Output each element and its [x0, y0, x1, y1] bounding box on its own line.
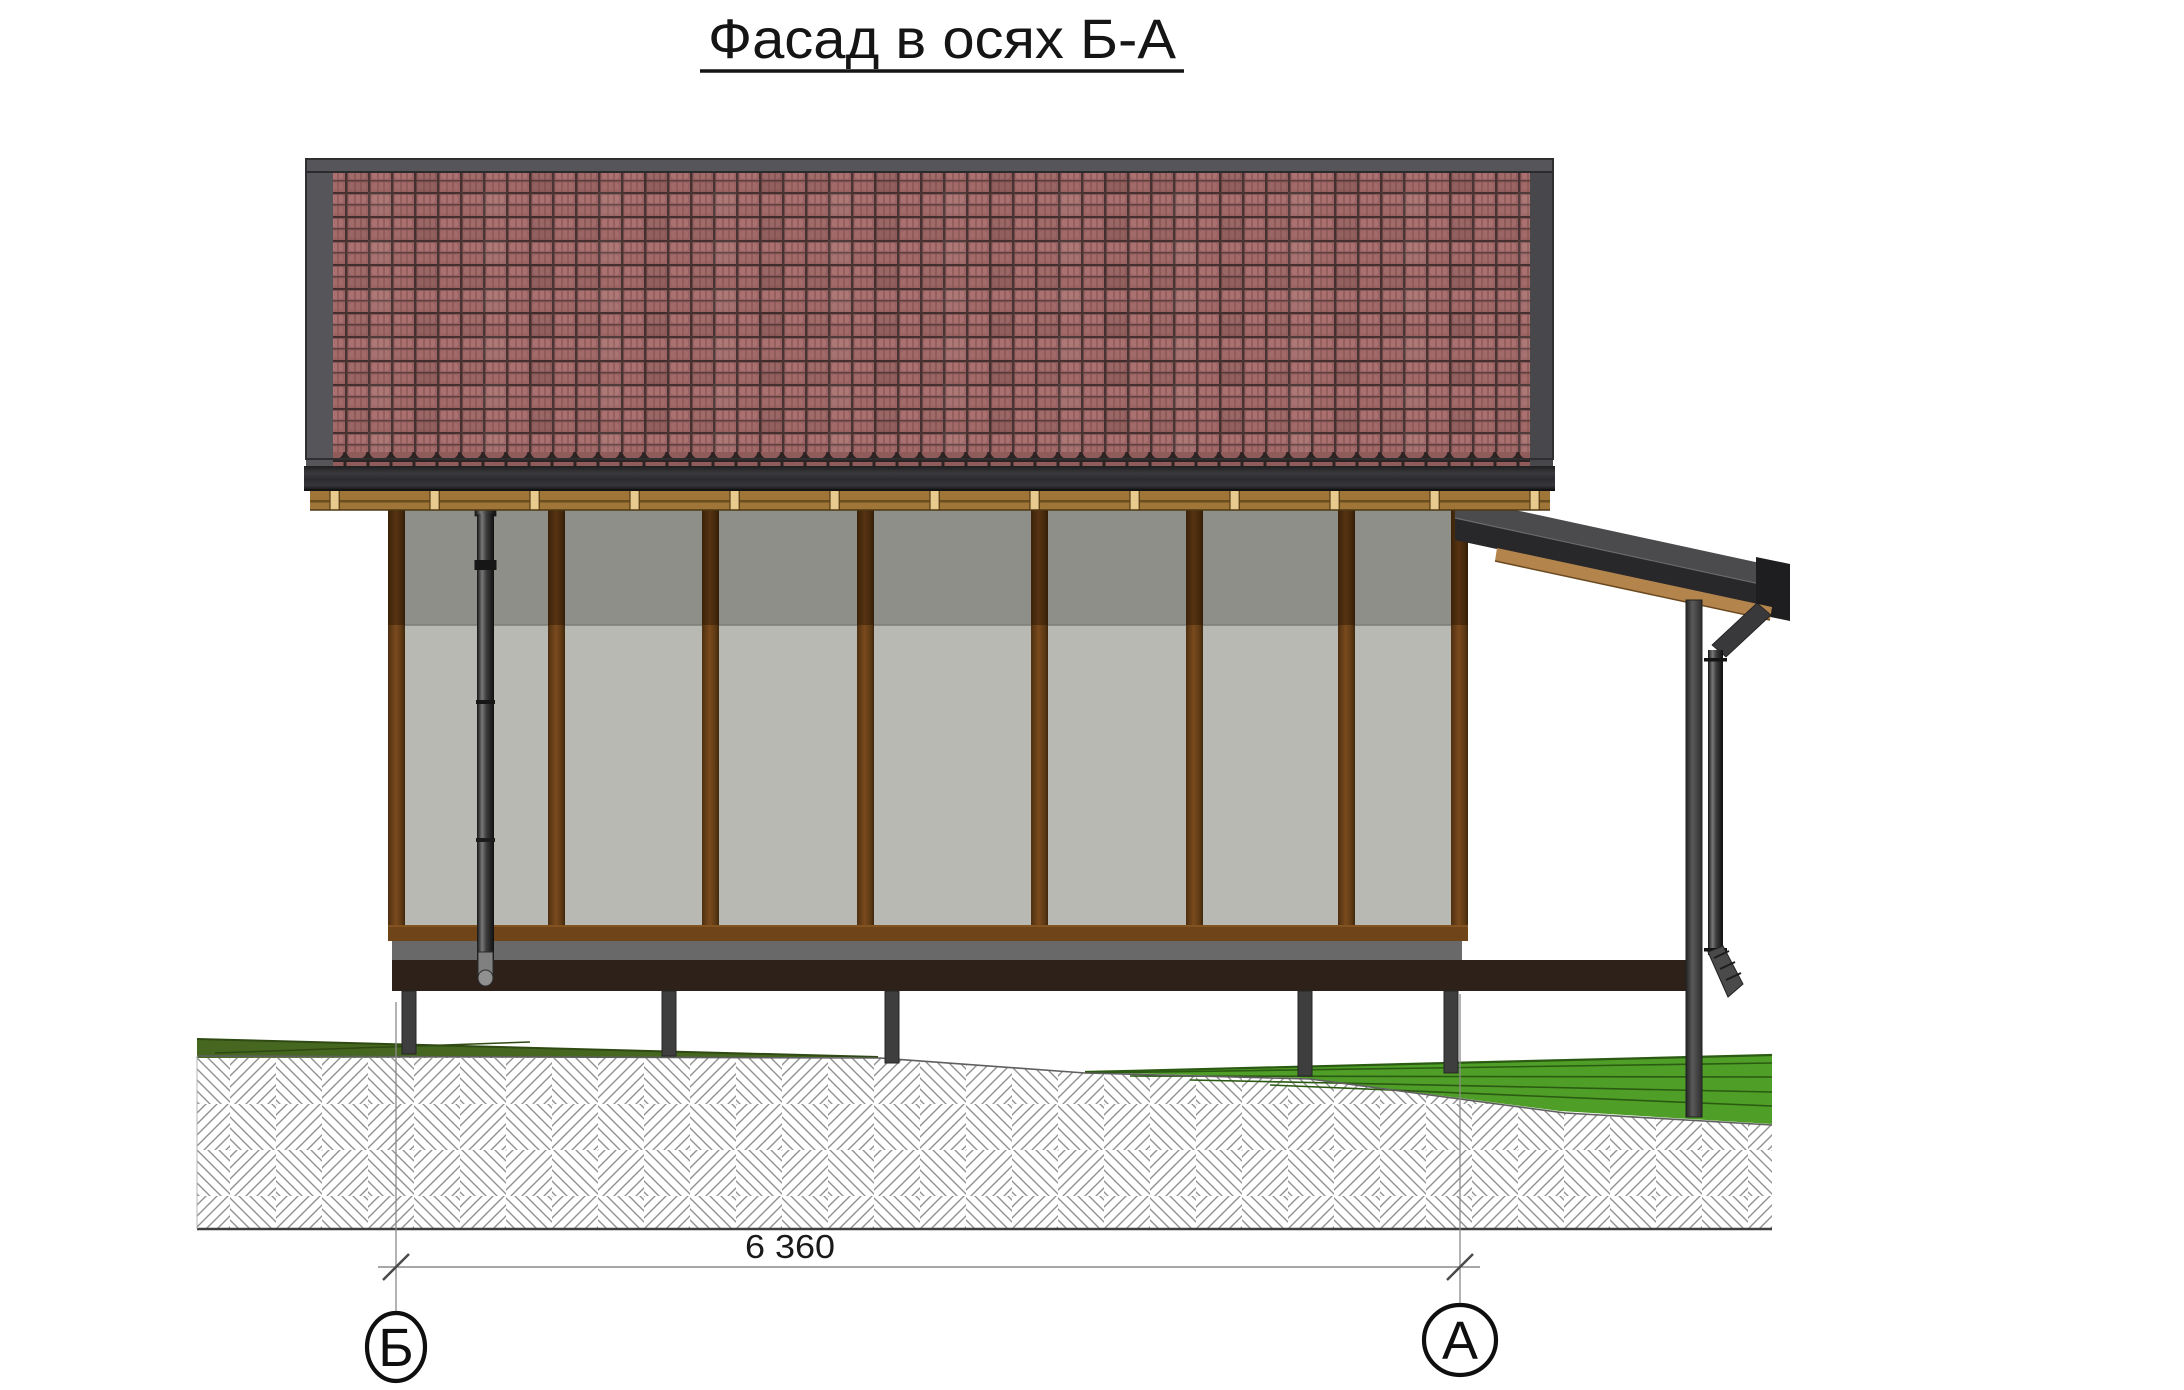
foundation-pile: [402, 991, 416, 1054]
foundation-pile: [1298, 991, 1312, 1076]
porch-post: [1686, 600, 1702, 1117]
foundation-pile: [662, 991, 676, 1056]
downpipe-joint: [476, 700, 495, 704]
roof-fascia-gutter: [304, 466, 1555, 490]
main-roof: [304, 159, 1555, 510]
wall-bottom-rail: [388, 925, 1468, 941]
roof-tiles-variation: [333, 168, 1530, 455]
axis-a-label: А: [1442, 1311, 1478, 1371]
roof-frame-top: [306, 159, 1553, 172]
deck-gray-band: [392, 941, 1462, 962]
dimension-value: 6 360: [745, 1228, 835, 1265]
page-title: Фасад в осях Б-А: [708, 7, 1177, 70]
facade-drawing-sheet: Фасад в осях Б-А 6 360 Б А: [0, 0, 2184, 1390]
porch-downpipe-bracket: [1704, 658, 1727, 662]
facade-drawing: Фасад в осях Б-А 6 360 Б А: [0, 0, 2184, 1390]
foundation-pile: [1444, 991, 1458, 1073]
facade-wall: [388, 508, 1468, 941]
downpipe-body: [477, 514, 494, 960]
title-block: Фасад в осях Б-А: [700, 7, 1184, 71]
roof-frame-left: [306, 159, 333, 466]
deck-dark-band: [392, 960, 1702, 991]
eave-wood-band: [310, 491, 1550, 510]
axis-b-label: Б: [378, 1318, 413, 1378]
porch: [1455, 497, 1790, 1117]
downpipe-collar: [475, 560, 497, 570]
roof-frame-right: [1530, 159, 1553, 466]
downpipe-joint: [476, 838, 495, 842]
downpipe-cap-end: [478, 970, 493, 986]
ground-section: [197, 1039, 1772, 1229]
porch-downpipe-body: [1708, 650, 1723, 955]
foundation-pile: [885, 991, 899, 1063]
wall-downpipe: [475, 466, 497, 986]
